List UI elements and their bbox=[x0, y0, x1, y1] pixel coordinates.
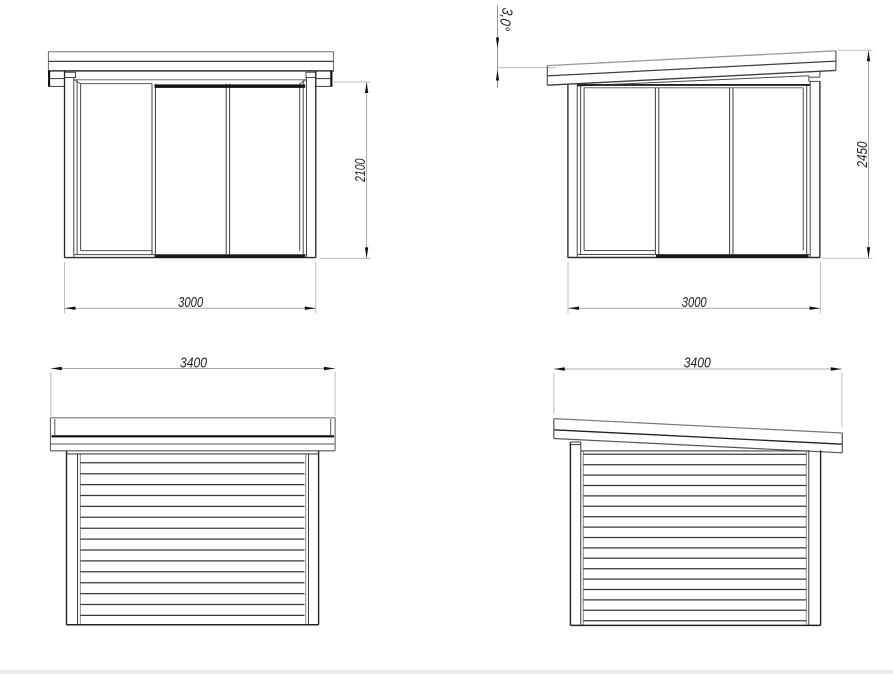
svg-text:3400: 3400 bbox=[684, 355, 712, 372]
svg-text:3400: 3400 bbox=[180, 355, 208, 372]
svg-text:2450: 2450 bbox=[854, 141, 871, 168]
svg-text:3000: 3000 bbox=[178, 294, 203, 311]
svg-text:2100: 2100 bbox=[352, 158, 369, 183]
svg-text:3000: 3000 bbox=[682, 294, 707, 311]
